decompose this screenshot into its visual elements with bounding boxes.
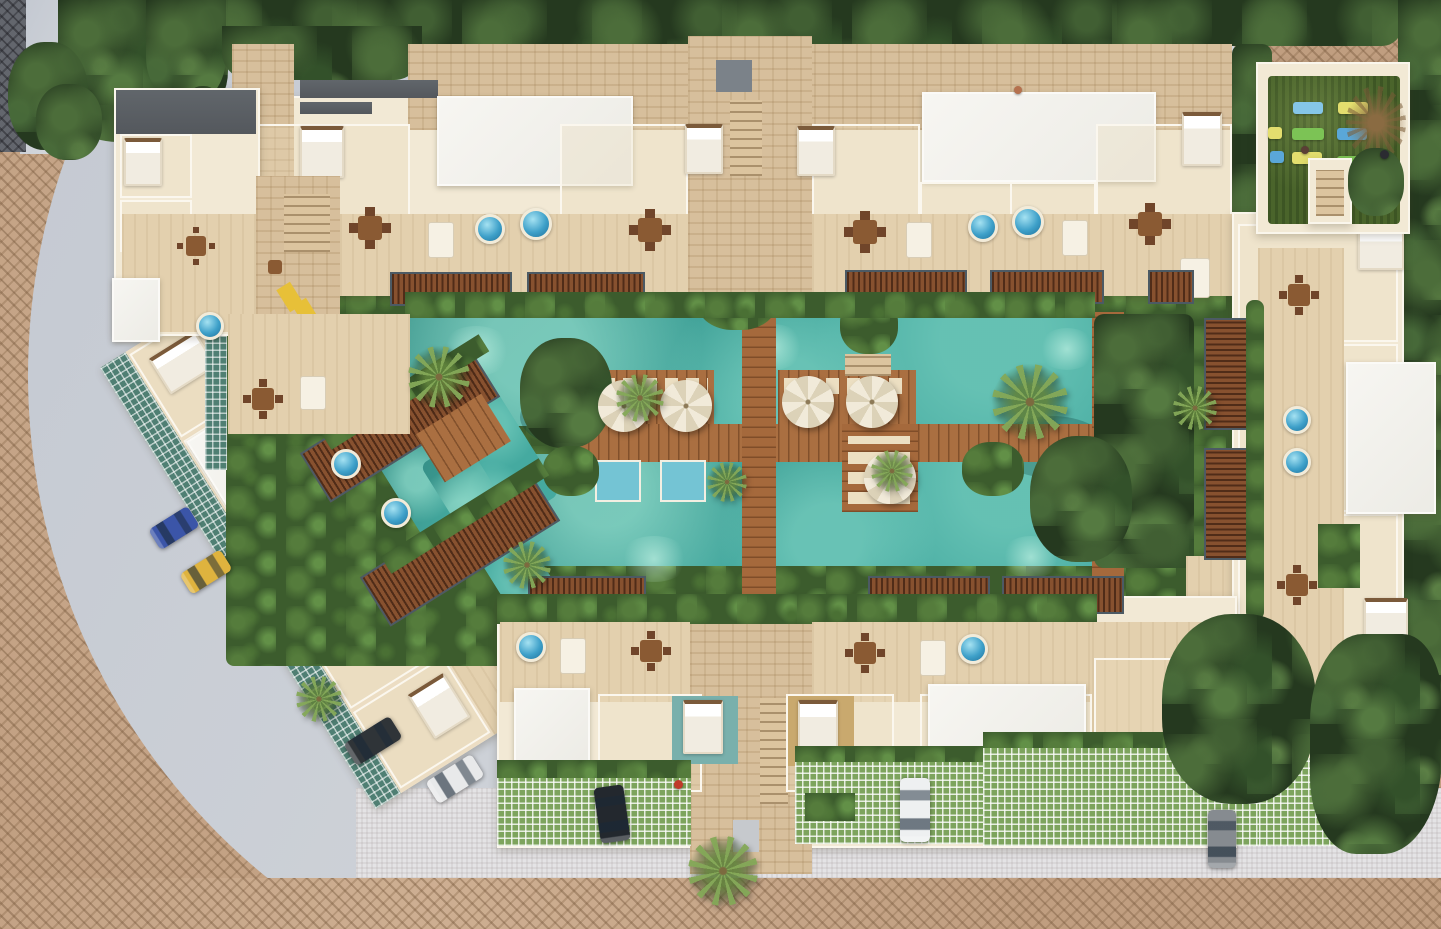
car-suv-dark	[343, 716, 403, 767]
car-sedan-dark	[593, 784, 631, 844]
yoga-person-2	[1301, 146, 1309, 154]
car-blue	[148, 506, 200, 551]
site-plan-render	[0, 0, 1441, 929]
tree-clump-south-a	[1162, 614, 1316, 804]
yoga-mat-4	[1292, 128, 1324, 140]
tree-clump-south-b	[1310, 634, 1441, 854]
car-sedan-gray	[1208, 810, 1236, 868]
yoga-bush	[1348, 148, 1404, 216]
palm-center-2	[707, 462, 747, 502]
car-van-white	[425, 754, 485, 805]
yoga-mat-3	[1268, 127, 1282, 139]
yoga-mat-1	[1293, 102, 1323, 114]
features	[0, 0, 1441, 929]
palm-mid-pool	[871, 450, 913, 492]
palm-west-lower	[296, 676, 342, 722]
palm-center-1	[616, 374, 664, 422]
yoga-stairs	[1316, 170, 1344, 216]
yoga-mat-6	[1270, 151, 1284, 163]
palm-nw-pool	[408, 346, 470, 408]
palm-east-terrace	[1173, 386, 1217, 430]
car-yellow	[179, 549, 232, 595]
west-rot-bed	[407, 673, 470, 739]
palm-south-sidewalk	[688, 836, 758, 906]
yoga-person-1	[1380, 150, 1389, 159]
palm-east-big	[992, 364, 1068, 440]
palm-west-pool	[503, 541, 551, 589]
car-sedan-white	[900, 778, 930, 842]
